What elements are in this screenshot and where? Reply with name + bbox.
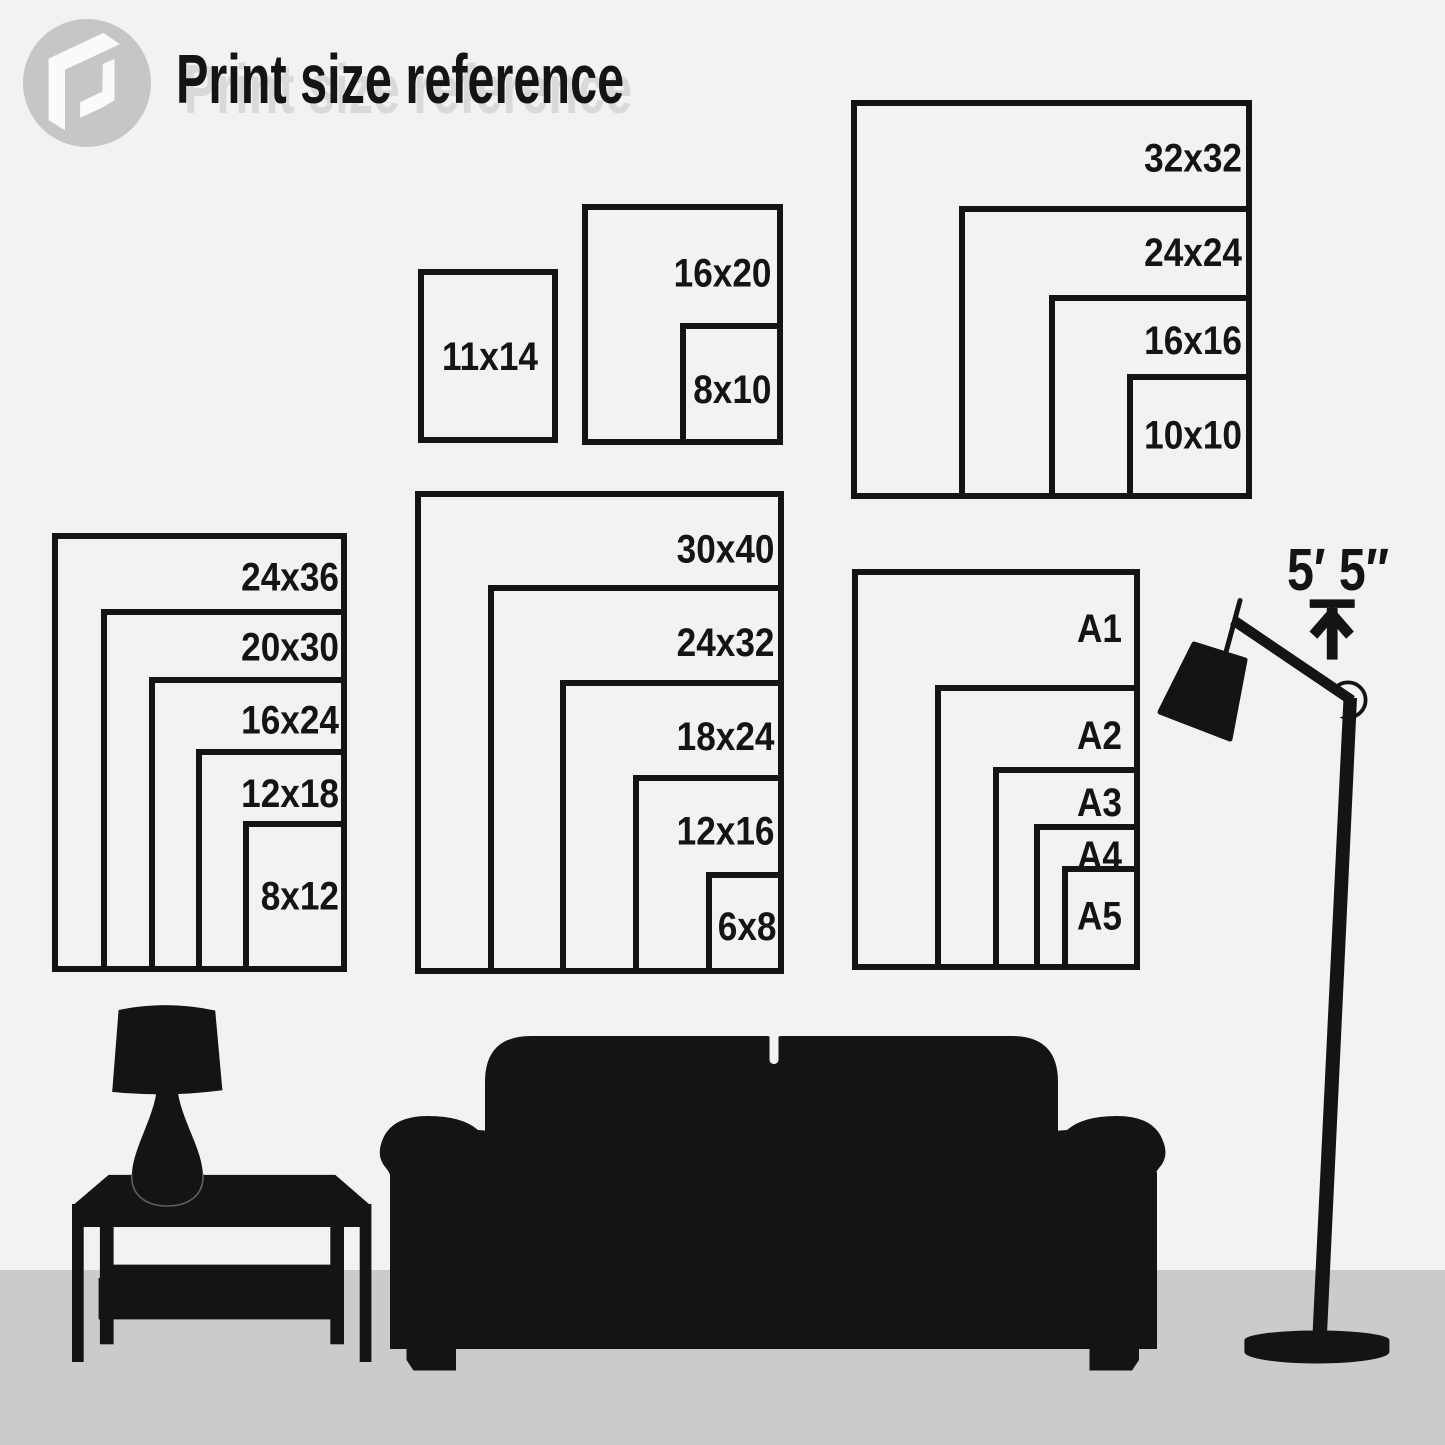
svg-text:30x40: 30x40	[677, 526, 775, 571]
svg-text:A5: A5	[1077, 894, 1122, 939]
svg-text:18x24: 18x24	[677, 714, 775, 759]
svg-text:24x24: 24x24	[1144, 230, 1242, 275]
svg-text:Print size reference: Print size reference	[176, 39, 624, 118]
svg-text:16x20: 16x20	[674, 250, 772, 295]
svg-text:6x8: 6x8	[718, 904, 777, 949]
svg-text:16x24: 16x24	[241, 698, 339, 743]
svg-text:12x18: 12x18	[241, 771, 339, 816]
svg-text:24x32: 24x32	[677, 620, 775, 665]
svg-text:12x16: 12x16	[677, 809, 775, 854]
svg-text:20x30: 20x30	[241, 624, 339, 669]
svg-text:8x10: 8x10	[693, 367, 771, 412]
svg-text:11x14: 11x14	[442, 334, 538, 379]
svg-text:32x32: 32x32	[1144, 135, 1242, 180]
svg-text:A1: A1	[1077, 606, 1122, 651]
svg-text:8x12: 8x12	[261, 873, 339, 918]
svg-text:5′ 5″: 5′ 5″	[1287, 538, 1389, 604]
svg-text:16x16: 16x16	[1144, 318, 1242, 363]
svg-text:A4: A4	[1077, 833, 1122, 878]
svg-text:A3: A3	[1077, 780, 1122, 825]
svg-text:A2: A2	[1077, 713, 1122, 758]
svg-text:24x36: 24x36	[241, 555, 339, 600]
svg-text:10x10: 10x10	[1144, 412, 1242, 457]
